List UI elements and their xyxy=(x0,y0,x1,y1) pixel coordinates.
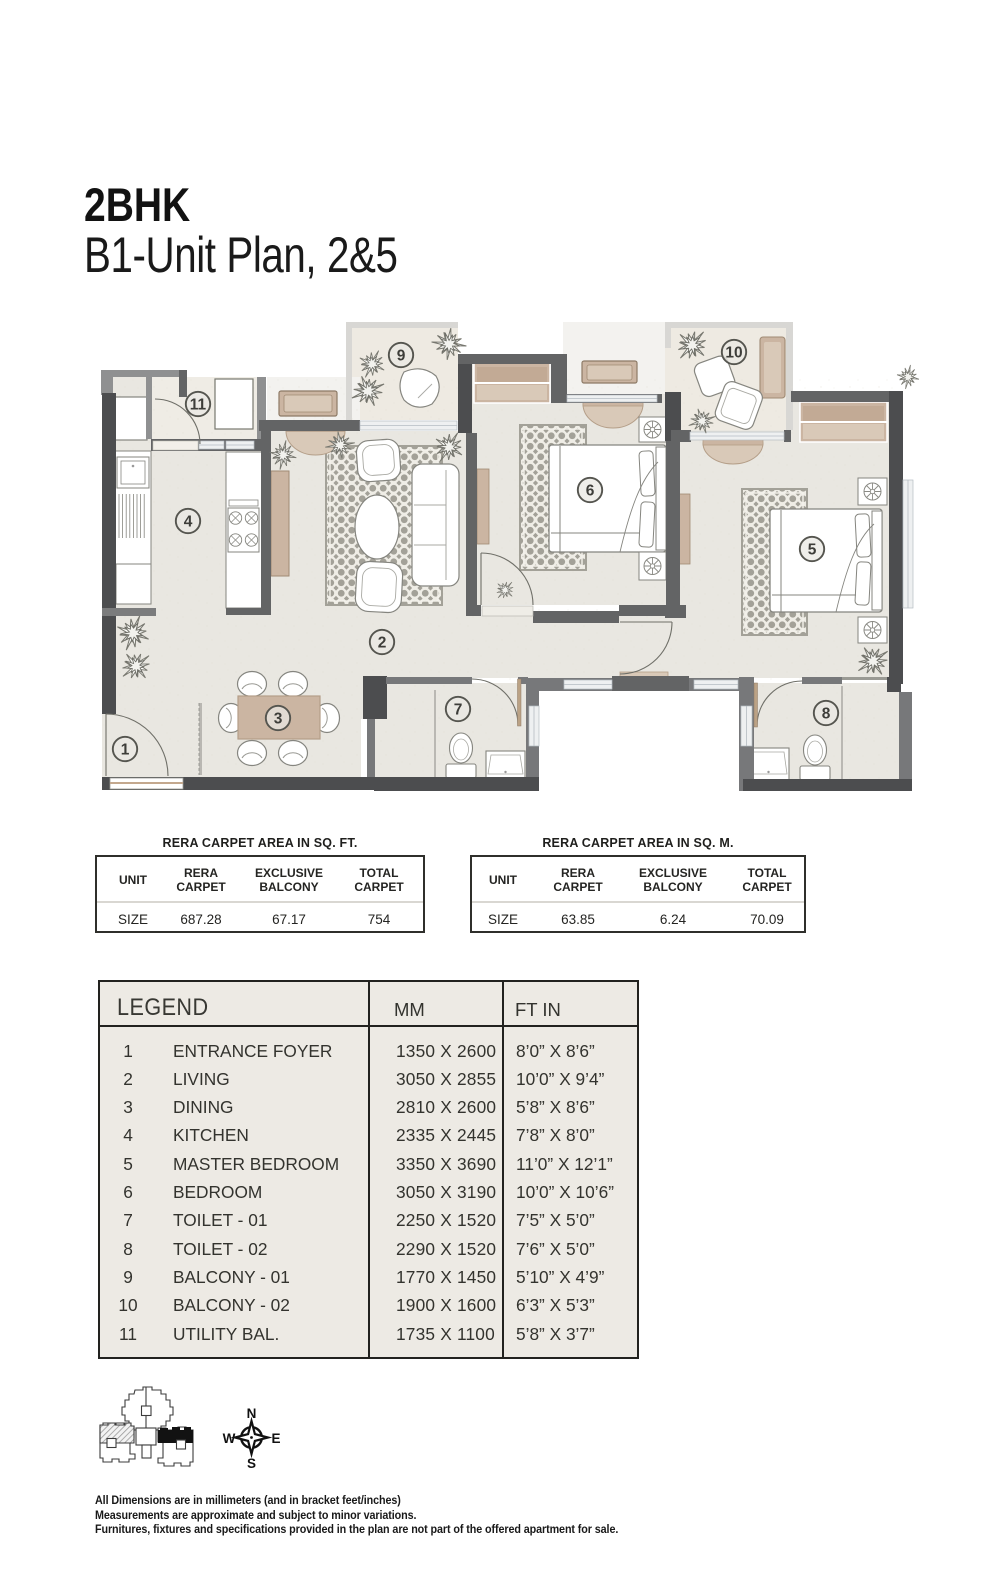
svg-text:9: 9 xyxy=(397,347,406,364)
svg-text:8: 8 xyxy=(822,705,831,722)
svg-text:4: 4 xyxy=(184,513,193,530)
svg-text:E: E xyxy=(271,1431,280,1446)
svg-text:6: 6 xyxy=(586,482,595,499)
svg-text:2: 2 xyxy=(378,634,387,651)
svg-text:10: 10 xyxy=(725,344,742,361)
svg-text:1: 1 xyxy=(121,741,130,758)
svg-text:5: 5 xyxy=(808,541,817,558)
svg-text:7: 7 xyxy=(454,701,463,718)
svg-text:W: W xyxy=(223,1431,236,1446)
svg-text:11: 11 xyxy=(190,396,207,413)
svg-text:3: 3 xyxy=(274,710,283,727)
